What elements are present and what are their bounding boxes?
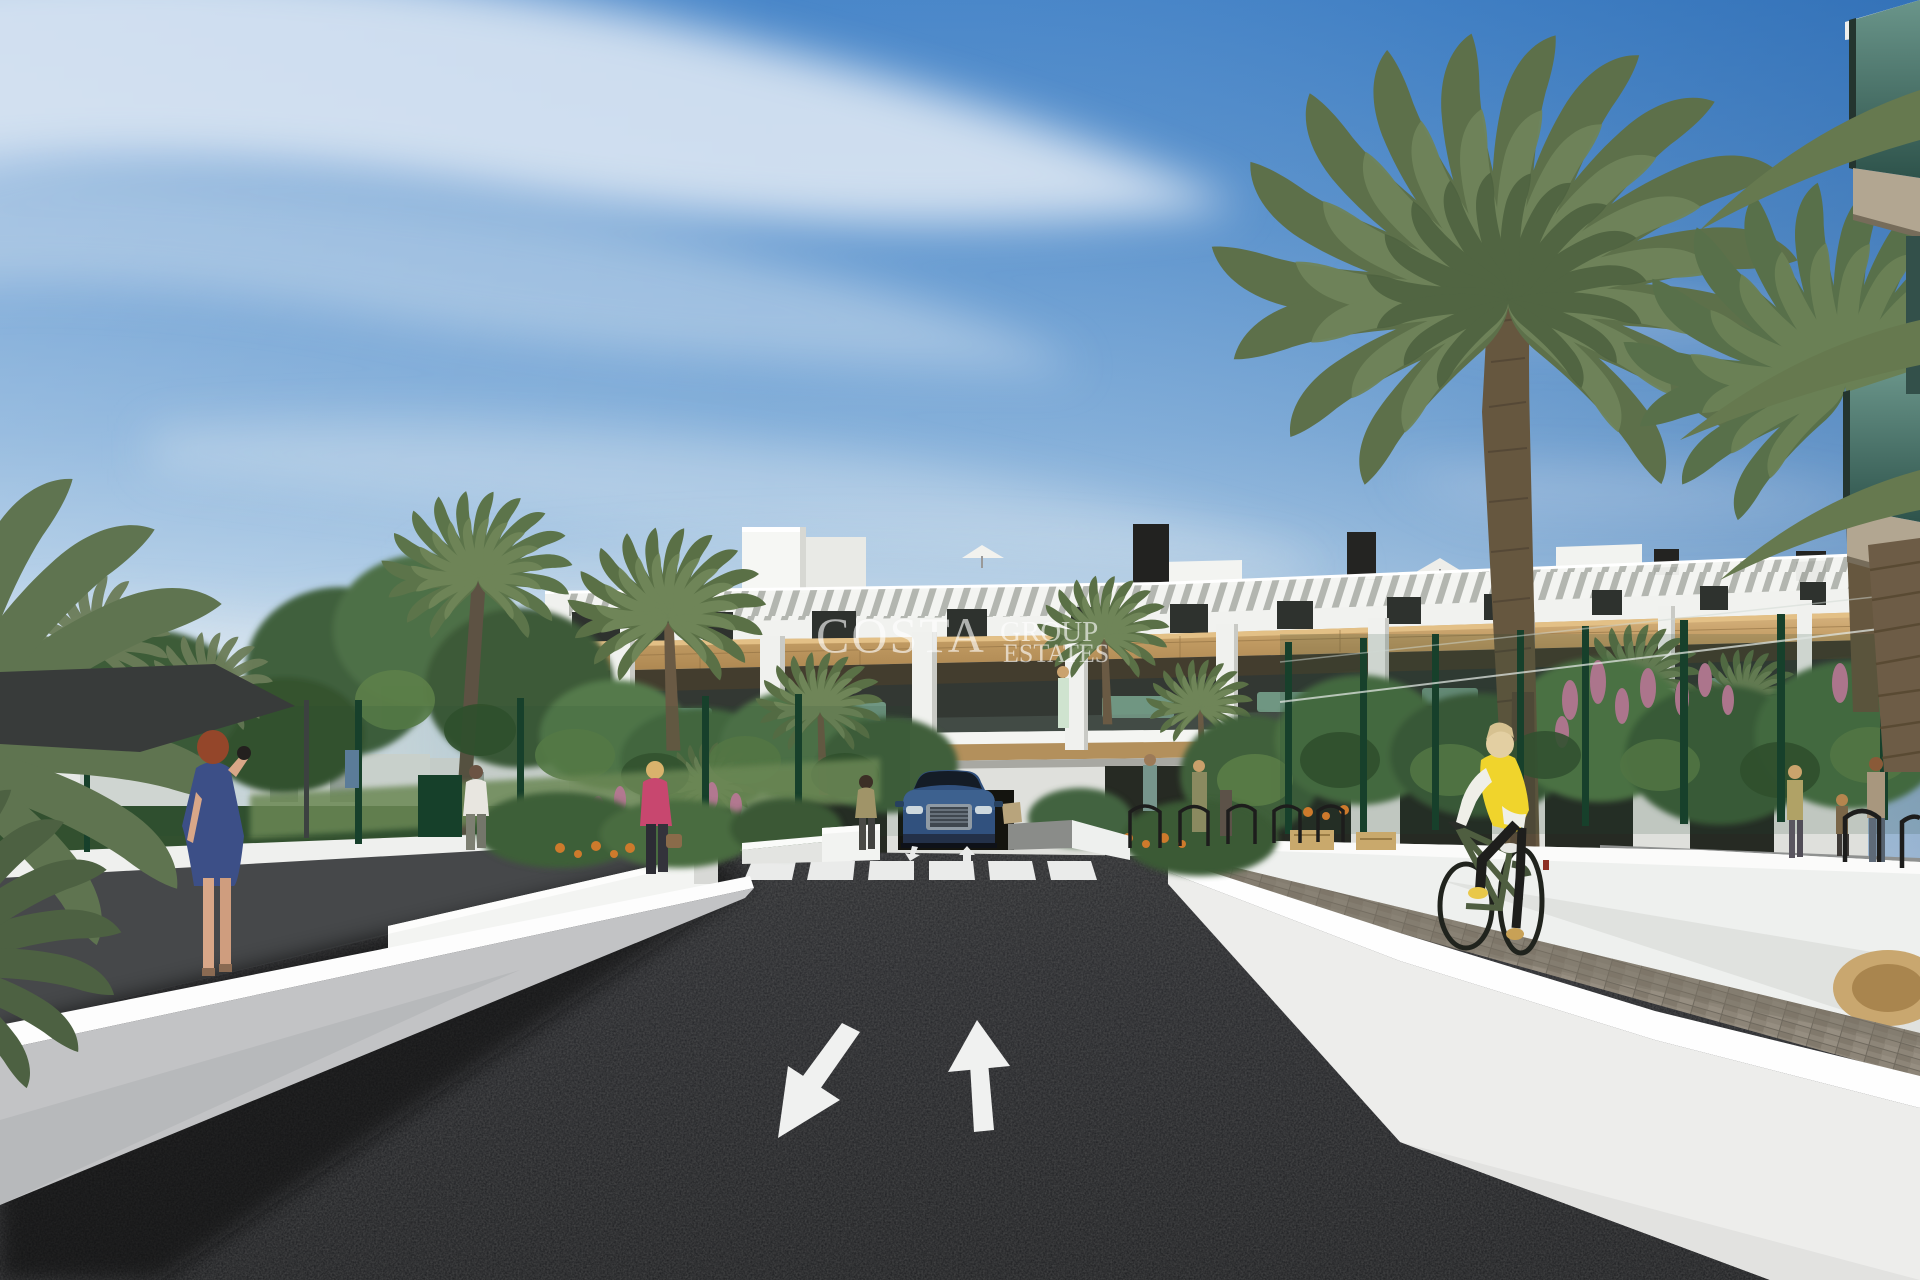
svg-text:COSTA: COSTA: [816, 607, 986, 663]
svg-text:ESTATES: ESTATES: [1003, 639, 1109, 668]
